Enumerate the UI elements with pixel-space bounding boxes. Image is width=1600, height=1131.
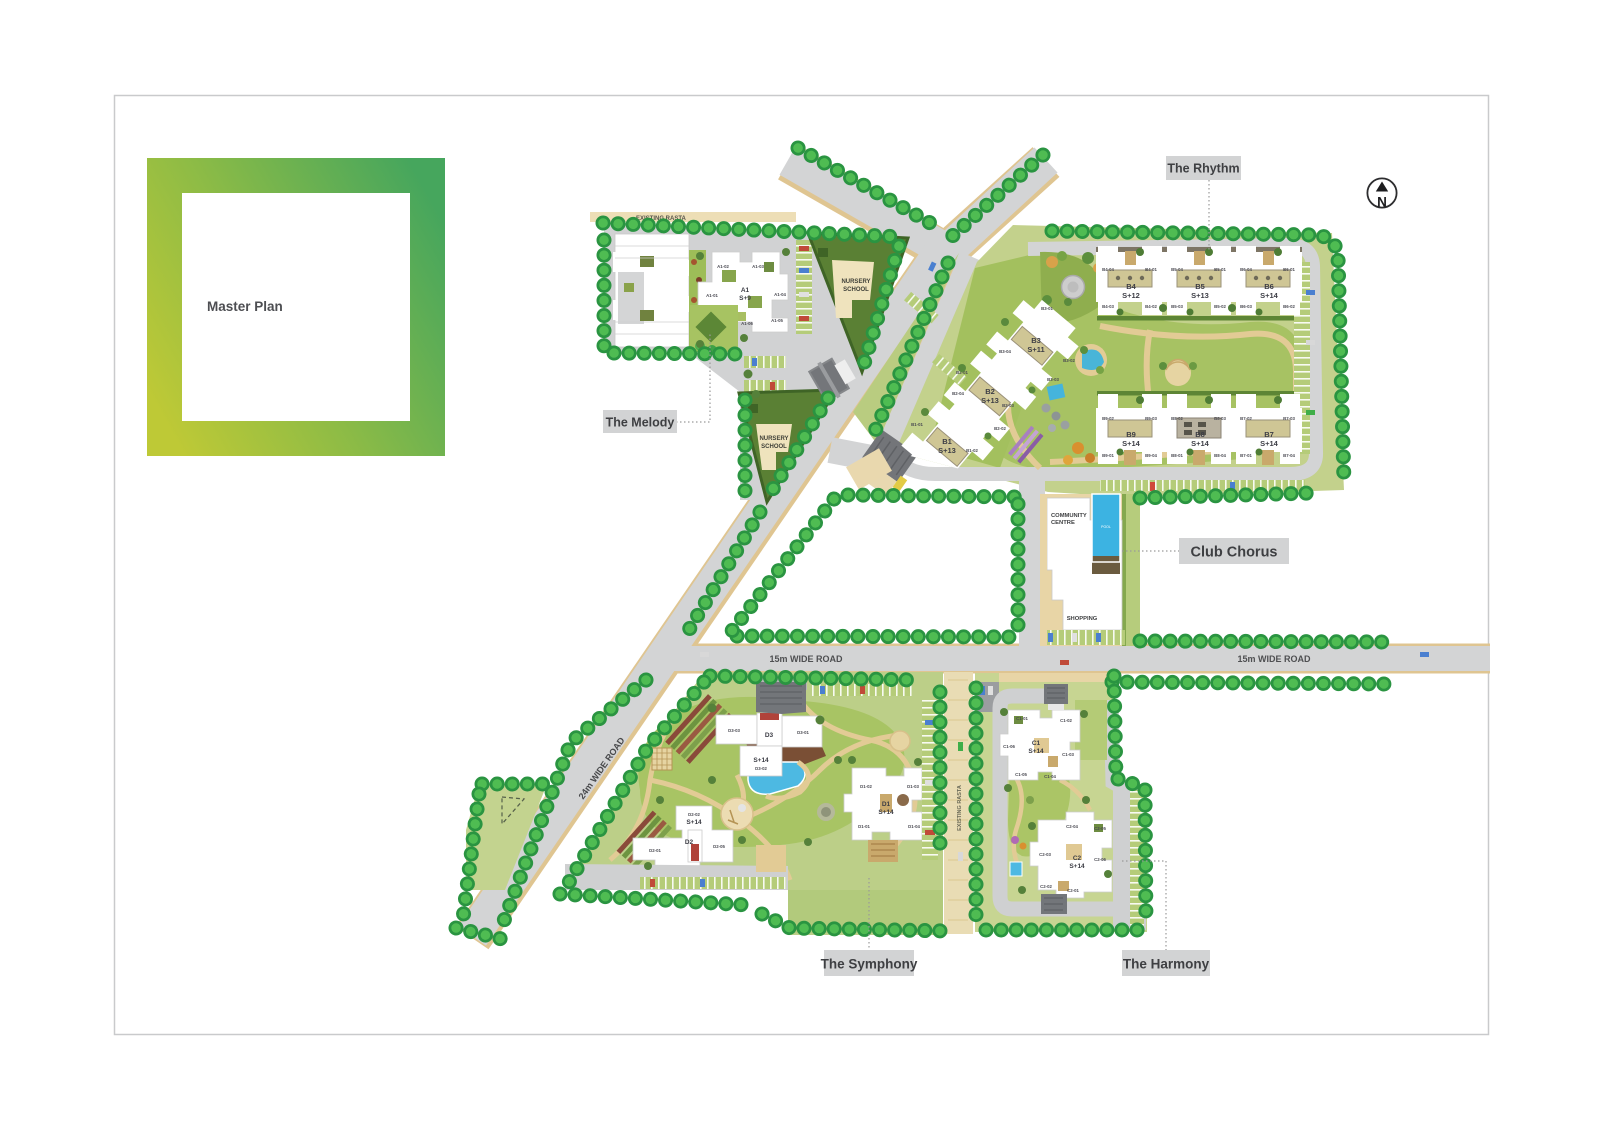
svg-text:D1-04: D1-04 xyxy=(908,824,920,829)
svg-text:D3-03: D3-03 xyxy=(728,728,740,733)
svg-text:B8-01: B8-01 xyxy=(1171,453,1183,458)
svg-text:COMMUNITY: COMMUNITY xyxy=(1051,513,1087,519)
svg-text:D1-03: D1-03 xyxy=(907,784,919,789)
svg-text:B2-04: B2-04 xyxy=(952,391,964,396)
svg-text:B7-01: B7-01 xyxy=(1240,453,1252,458)
svg-text:B5: B5 xyxy=(1195,282,1205,291)
svg-text:A1-01: A1-01 xyxy=(706,293,718,298)
svg-text:D2-02: D2-02 xyxy=(688,812,700,817)
svg-text:D2: D2 xyxy=(685,839,694,846)
svg-text:S+14: S+14 xyxy=(1069,863,1085,870)
svg-text:B2-03: B2-03 xyxy=(1002,403,1014,408)
svg-text:D3-01: D3-01 xyxy=(797,730,809,735)
svg-text:B4-03: B4-03 xyxy=(1102,304,1114,309)
svg-text:B6-02: B6-02 xyxy=(1283,304,1295,309)
svg-text:The Rhythm: The Rhythm xyxy=(1167,162,1239,176)
svg-text:B1-01: B1-01 xyxy=(911,422,923,427)
svg-text:S+14: S+14 xyxy=(1260,439,1279,448)
svg-text:B7-04: B7-04 xyxy=(1283,453,1295,458)
svg-text:S+14: S+14 xyxy=(1191,439,1210,448)
svg-text:Club Chorus: Club Chorus xyxy=(1191,545,1278,561)
svg-text:S+14: S+14 xyxy=(1028,748,1044,755)
svg-text:15m WIDE ROAD: 15m WIDE ROAD xyxy=(1237,654,1311,664)
svg-text:C2-04: C2-04 xyxy=(1066,824,1078,829)
svg-text:C2-02: C2-02 xyxy=(1040,884,1052,889)
svg-text:D2-05: D2-05 xyxy=(713,844,725,849)
svg-text:B9-04: B9-04 xyxy=(1145,453,1157,458)
svg-text:Master Plan: Master Plan xyxy=(207,299,283,314)
svg-text:A1-05: A1-05 xyxy=(771,318,783,323)
svg-text:C1-04: C1-04 xyxy=(1044,774,1056,779)
svg-text:CENTRE: CENTRE xyxy=(1051,520,1075,526)
svg-text:B3-04: B3-04 xyxy=(999,349,1011,354)
svg-text:D1: D1 xyxy=(882,801,891,808)
svg-text:C2: C2 xyxy=(1073,855,1082,862)
svg-text:B9-03: B9-03 xyxy=(1145,416,1157,421)
svg-text:B3-02: B3-02 xyxy=(1063,358,1075,363)
svg-text:A1: A1 xyxy=(741,287,750,294)
svg-text:The Harmony: The Harmony xyxy=(1123,957,1210,972)
svg-text:C1-05: C1-05 xyxy=(1015,772,1027,777)
svg-text:S+14: S+14 xyxy=(753,757,769,764)
svg-text:D2-01: D2-01 xyxy=(649,848,661,853)
svg-text:The Symphony: The Symphony xyxy=(821,957,918,972)
svg-text:B9-01: B9-01 xyxy=(1102,453,1114,458)
svg-text:B4: B4 xyxy=(1126,282,1136,291)
svg-text:EXISTING RASTA: EXISTING RASTA xyxy=(957,785,963,831)
svg-text:A1-02: A1-02 xyxy=(717,264,729,269)
svg-text:B7: B7 xyxy=(1264,430,1274,439)
svg-text:D1-01: D1-01 xyxy=(858,824,870,829)
svg-text:S+14: S+14 xyxy=(1122,439,1141,448)
svg-text:B2-02: B2-02 xyxy=(994,426,1006,431)
svg-text:B6-01: B6-01 xyxy=(1283,267,1295,272)
svg-text:B6-04: B6-04 xyxy=(1240,267,1252,272)
svg-text:B9-02: B9-02 xyxy=(1102,416,1114,421)
svg-text:B5-01: B5-01 xyxy=(1214,267,1226,272)
svg-text:B9: B9 xyxy=(1126,430,1136,439)
svg-text:A1-06: A1-06 xyxy=(741,321,753,326)
svg-text:C1-01: C1-01 xyxy=(1016,716,1028,721)
svg-text:S+14: S+14 xyxy=(686,819,702,826)
svg-text:C1-03: C1-03 xyxy=(1062,752,1074,757)
svg-text:B7-03: B7-03 xyxy=(1283,416,1295,421)
svg-text:B6-03: B6-03 xyxy=(1240,304,1252,309)
svg-text:C1-02: C1-02 xyxy=(1060,718,1072,723)
svg-text:SCHOOL: SCHOOL xyxy=(761,444,787,450)
svg-text:D3: D3 xyxy=(765,732,774,739)
svg-text:B8: B8 xyxy=(1195,430,1205,439)
svg-text:B4-01: B4-01 xyxy=(1145,267,1157,272)
svg-text:C1-06: C1-06 xyxy=(1003,744,1015,749)
svg-text:C1: C1 xyxy=(1032,740,1041,747)
svg-text:B6: B6 xyxy=(1264,282,1274,291)
svg-text:B8-03: B8-03 xyxy=(1214,416,1226,421)
svg-text:B1-02: B1-02 xyxy=(966,448,978,453)
svg-text:SHOPPING: SHOPPING xyxy=(1067,616,1098,622)
svg-text:B3: B3 xyxy=(1031,336,1041,345)
svg-text:C2-03: C2-03 xyxy=(1039,852,1051,857)
svg-text:S+13: S+13 xyxy=(938,446,956,455)
svg-text:B3-03: B3-03 xyxy=(1047,377,1059,382)
svg-text:B5-04: B5-04 xyxy=(1171,267,1183,272)
svg-text:B4-02: B4-02 xyxy=(1145,304,1157,309)
svg-text:S+14: S+14 xyxy=(878,809,894,816)
svg-text:B8-02: B8-02 xyxy=(1171,416,1183,421)
svg-text:S+13: S+13 xyxy=(1191,291,1209,300)
svg-text:The Melody: The Melody xyxy=(606,416,675,430)
svg-text:D3-02: D3-02 xyxy=(755,766,767,771)
svg-text:B4-04: B4-04 xyxy=(1102,267,1114,272)
svg-text:N: N xyxy=(1377,195,1387,210)
svg-text:A1-03: A1-03 xyxy=(752,264,764,269)
svg-text:D1-02: D1-02 xyxy=(860,784,872,789)
svg-text:S+12: S+12 xyxy=(1122,291,1140,300)
svg-text:NURSERY: NURSERY xyxy=(759,436,788,442)
svg-text:B5-03: B5-03 xyxy=(1171,304,1183,309)
svg-text:S+13: S+13 xyxy=(981,396,999,405)
svg-text:B3-01: B3-01 xyxy=(1041,306,1053,311)
svg-text:C2-05: C2-05 xyxy=(1094,826,1106,831)
svg-text:C2-01: C2-01 xyxy=(1067,888,1079,893)
svg-text:B1: B1 xyxy=(942,437,952,446)
svg-text:15m WIDE ROAD: 15m WIDE ROAD xyxy=(769,654,843,664)
svg-text:C2-06: C2-06 xyxy=(1094,857,1106,862)
svg-text:B7-02: B7-02 xyxy=(1240,416,1252,421)
svg-text:POOL: POOL xyxy=(1101,525,1111,529)
svg-text:B5-02: B5-02 xyxy=(1214,304,1226,309)
svg-text:NURSERY: NURSERY xyxy=(841,279,870,285)
svg-text:S+11: S+11 xyxy=(1027,345,1044,354)
svg-text:SCHOOL: SCHOOL xyxy=(843,287,869,293)
svg-text:S+14: S+14 xyxy=(1260,291,1279,300)
svg-text:S+9: S+9 xyxy=(739,295,751,302)
svg-text:B8-04: B8-04 xyxy=(1214,453,1226,458)
svg-text:A1-04: A1-04 xyxy=(774,292,786,297)
svg-text:B2: B2 xyxy=(985,387,995,396)
